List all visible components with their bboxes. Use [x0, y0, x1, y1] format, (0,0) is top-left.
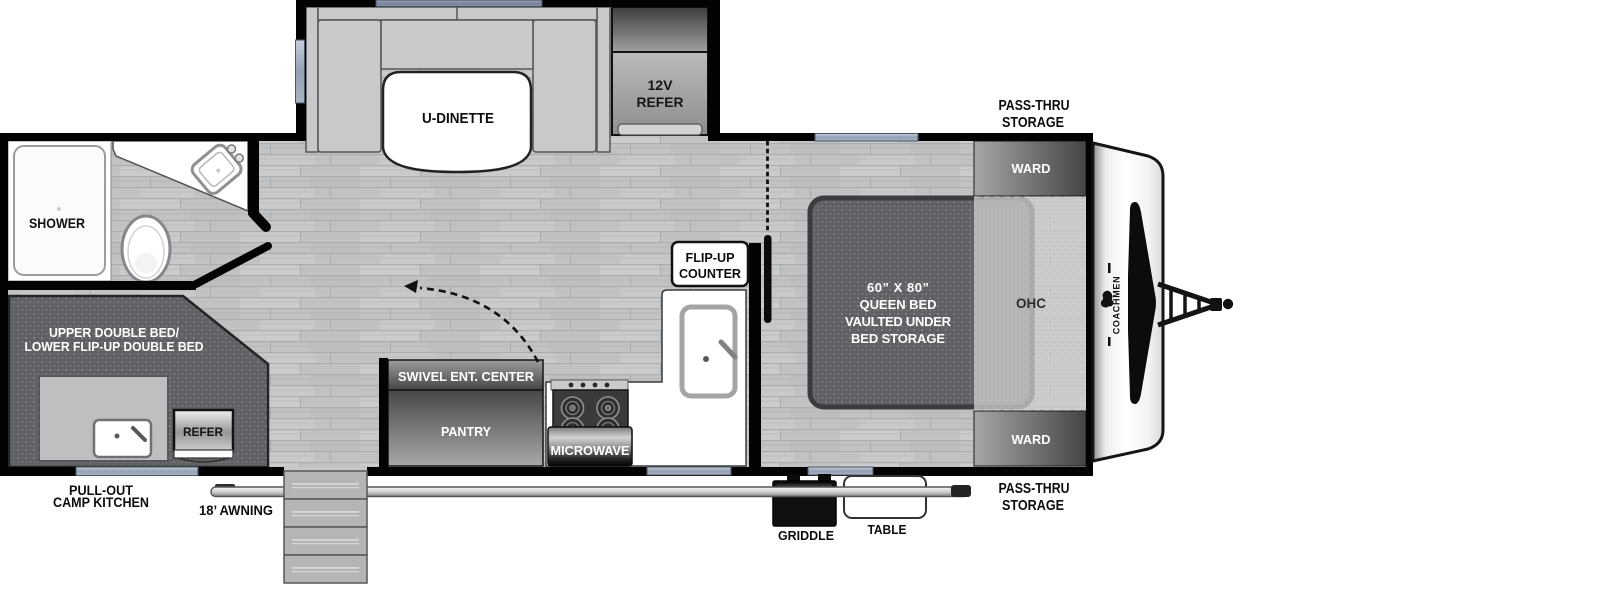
svg-text:QUEEN BED: QUEEN BED	[860, 297, 937, 312]
svg-text:18’ AWNING: 18’ AWNING	[199, 503, 273, 518]
svg-text:PASS-THRU: PASS-THRU	[999, 97, 1070, 114]
svg-text:REFER: REFER	[183, 425, 223, 439]
svg-text:CAMP KITCHEN: CAMP KITCHEN	[53, 495, 149, 510]
svg-text:VAULTED UNDER: VAULTED UNDER	[845, 314, 952, 329]
svg-text:GRIDDLE: GRIDDLE	[778, 529, 834, 543]
svg-text:LOWER FLIP-UP DOUBLE BED: LOWER FLIP-UP DOUBLE BED	[25, 339, 204, 354]
svg-text:FLIP-UP: FLIP-UP	[686, 251, 735, 265]
svg-text:STORAGE: STORAGE	[1002, 114, 1064, 131]
svg-text:12V: 12V	[648, 77, 674, 93]
svg-text:60” X 80”: 60” X 80”	[867, 280, 929, 295]
svg-text:OHC: OHC	[1016, 296, 1046, 311]
svg-text:BED STORAGE: BED STORAGE	[851, 331, 945, 346]
svg-text:U-DINETTE: U-DINETTE	[422, 110, 494, 127]
svg-text:MICROWAVE: MICROWAVE	[551, 444, 630, 458]
svg-text:SWIVEL ENT. CENTER: SWIVEL ENT. CENTER	[398, 370, 534, 384]
svg-text:TABLE: TABLE	[868, 523, 907, 537]
svg-text:UPPER DOUBLE BED/: UPPER DOUBLE BED/	[49, 325, 179, 340]
svg-text:SHOWER: SHOWER	[29, 215, 85, 231]
svg-text:WARD: WARD	[1012, 433, 1051, 447]
svg-text:WARD: WARD	[1012, 162, 1051, 176]
svg-text:PANTRY: PANTRY	[441, 425, 492, 439]
svg-text:REFER: REFER	[637, 94, 684, 110]
svg-text:PASS-THRU: PASS-THRU	[999, 480, 1070, 497]
svg-text:COUNTER: COUNTER	[679, 267, 741, 281]
svg-text:STORAGE: STORAGE	[1002, 497, 1064, 514]
svg-text:COACHMEN: COACHMEN	[1112, 276, 1122, 335]
